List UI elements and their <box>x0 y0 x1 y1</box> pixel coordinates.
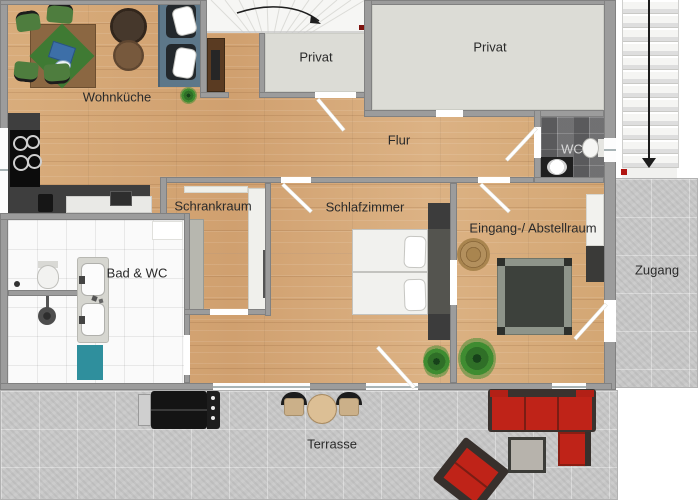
wall-bathroom-top <box>0 213 190 220</box>
wall-wohnkueche-right <box>200 0 207 98</box>
rug-corner <box>497 258 505 266</box>
nightstand <box>428 203 452 229</box>
bathroom-door-opening <box>184 335 190 375</box>
room-label-zugang: Zugang <box>635 263 679 278</box>
entry-cabinet-dark <box>586 246 604 282</box>
cooktop-burner <box>26 135 40 149</box>
pass-opening <box>450 260 457 305</box>
shower-head <box>38 307 56 325</box>
bistro-table <box>307 394 337 424</box>
room-label-eingang: Eingang-/ Abstellraum <box>469 221 596 236</box>
wall-corridor-privat <box>259 33 265 98</box>
coffee-machine <box>38 194 53 212</box>
dining-chair <box>43 63 70 85</box>
bath-toilet-bowl <box>37 265 59 289</box>
outer-wall-top <box>0 0 207 5</box>
round-rug-light <box>113 40 144 71</box>
sofa-pillow-red <box>576 390 594 397</box>
stairs-down-arrow-icon <box>648 0 650 160</box>
outdoor-sofa <box>488 389 596 432</box>
rug-corner <box>564 327 572 335</box>
bistro-chair-seat <box>284 398 304 416</box>
plant <box>458 337 496 380</box>
schlafzimmer-door-opening <box>281 177 311 183</box>
bath-cabinet <box>152 221 183 240</box>
sofa-cushion-red <box>492 397 592 430</box>
door-opening <box>315 92 356 98</box>
kitchen-worktop <box>66 196 152 213</box>
schrankraum-door-opening <box>210 309 248 315</box>
bed-pillow <box>403 236 426 269</box>
wall-cap <box>200 92 229 98</box>
faucet <box>79 276 85 284</box>
faucet <box>79 316 85 324</box>
red-marker <box>359 25 364 30</box>
privat-right-floor <box>372 0 604 110</box>
small-plant <box>180 87 197 104</box>
rug-corner <box>497 327 505 335</box>
jute-rug <box>457 238 490 271</box>
rug-corner <box>564 258 572 266</box>
exterior-stairs-landing <box>622 168 677 178</box>
wc-toilet-bowl <box>582 138 599 158</box>
red-marker <box>621 169 627 175</box>
grill-knob <box>211 406 215 410</box>
cushion-seam <box>524 397 526 430</box>
plant <box>423 344 450 379</box>
grill-side-shelf <box>138 394 151 426</box>
wall-schlafzimmer-left <box>265 183 271 316</box>
door-opening <box>436 110 463 117</box>
zugang-path-floor <box>612 178 698 388</box>
wc-sink-basin <box>547 159 567 175</box>
wall-privat-right-bottom <box>364 110 604 117</box>
eingang-door-opening <box>478 177 510 183</box>
kitchen-sink <box>110 191 132 206</box>
window <box>0 128 8 218</box>
room-label-bad-wc: Bad & WC <box>107 266 168 281</box>
room-label-privat-top: Privat <box>299 50 332 65</box>
terrace-sliding-door <box>213 383 310 390</box>
bed-pillow <box>403 279 426 312</box>
exterior-stairs <box>622 0 679 168</box>
dining-chair <box>15 9 42 32</box>
cushion-seam <box>557 397 559 430</box>
floor-plan: Wohnküche Privat Privat Flur WC Schrankr… <box>0 0 700 500</box>
toilet-partition-wall <box>8 290 82 296</box>
room-label-terrasse: Terrasse <box>307 437 357 452</box>
dining-chair <box>46 2 74 24</box>
outdoor-coffee-table <box>508 437 546 473</box>
room-label-wc: WC <box>561 142 583 157</box>
room-label-privat-right: Privat <box>473 40 506 55</box>
grill-lid-seam <box>151 409 207 411</box>
stairs-down-arrowhead-icon <box>642 158 656 168</box>
nightstand <box>428 314 452 340</box>
bistro-chair-seat <box>339 398 359 416</box>
wall-wc-bottom <box>534 177 604 183</box>
wall-fixture <box>14 281 20 287</box>
bath-mat <box>77 345 103 380</box>
outer-wall-top <box>364 0 616 5</box>
area-rug <box>497 258 572 335</box>
shelf-rail <box>184 186 248 193</box>
room-label-schlafzimmer: Schlafzimmer <box>326 200 405 215</box>
window <box>604 138 616 162</box>
chaise-frame <box>585 432 591 466</box>
grill-knob <box>211 396 215 400</box>
area-rug-center <box>505 266 564 327</box>
cooktop-burner <box>27 154 42 169</box>
sofa-pillow-red <box>490 390 508 397</box>
wall-privat-right-left <box>364 0 372 117</box>
room-label-wohnkueche: Wohnküche <box>83 90 151 105</box>
grill-knob <box>211 416 215 420</box>
dining-chair <box>13 61 39 83</box>
room-label-schrankraum: Schrankraum <box>174 199 251 214</box>
room-label-flur: Flur <box>388 133 410 148</box>
interior-stairs <box>207 0 372 33</box>
tv <box>211 50 220 80</box>
